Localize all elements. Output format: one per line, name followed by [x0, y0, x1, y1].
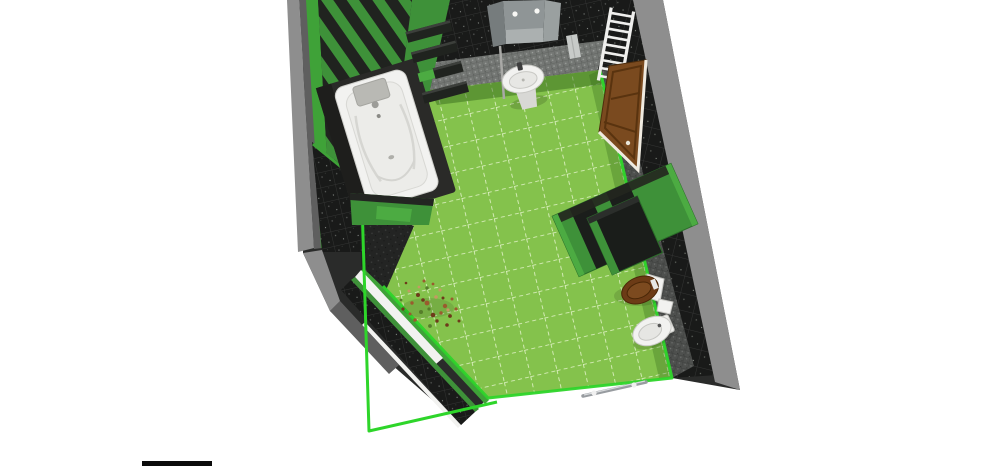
- mirror-light: [534, 8, 539, 13]
- mirror-light: [512, 11, 517, 16]
- towel-bar-bracket: [631, 382, 636, 387]
- towel-bar-bracket: [591, 390, 596, 395]
- screen-artifact-line: [142, 461, 212, 466]
- toilet-accessory[interactable]: [657, 299, 673, 314]
- mirror-panel-center-sheen: [506, 28, 543, 44]
- door-handle: [626, 141, 630, 145]
- mirror-panel-right: [543, 0, 561, 42]
- planner-viewport: [0, 0, 1000, 467]
- room-render: [0, 0, 1000, 467]
